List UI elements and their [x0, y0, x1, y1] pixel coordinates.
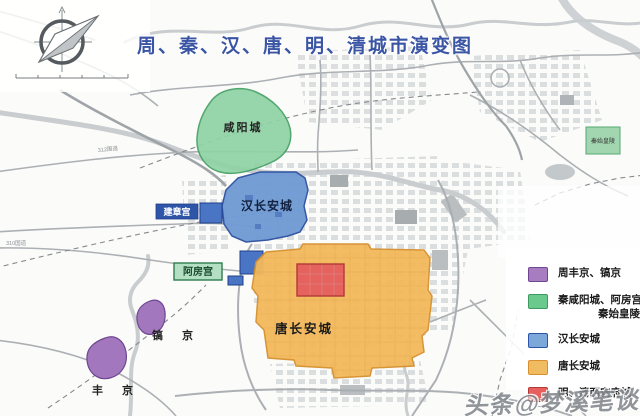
legend-row-zhou: 周丰京、镐京: [528, 266, 640, 282]
legend-label-qin: 秦咸阳城、阿房宫 秦始皇陵: [558, 293, 640, 321]
map-title: 周、秦、汉、唐、明、清城市演变图: [0, 31, 610, 58]
map-fade-right: [498, 186, 640, 258]
city-evolution-map: 咸阳城 秦始皇陵 汉长安城 建章宫 唐长安城: [0, 0, 640, 416]
legend-label-han: 汉长安城: [558, 332, 600, 346]
road-310-label: 310国道: [6, 239, 27, 247]
legend-label-qin-line2: 秦始皇陵: [558, 307, 640, 321]
qin-mausoleum-label: 秦始皇陵: [591, 137, 615, 145]
region-ming-qing-xian: [297, 264, 344, 296]
legend-swatch-han: [528, 333, 548, 348]
legend-row-qin: 秦咸阳城、阿房宫 秦始皇陵: [528, 293, 640, 321]
haojing-label: 镐 京: [152, 328, 201, 342]
watermark: 头条@梦溪笔谈: [463, 380, 640, 416]
epang-label-box: 阿房宫: [174, 263, 222, 280]
epang-palace-label: 阿房宫: [183, 265, 213, 278]
tang-changan-label: 唐长安城: [275, 321, 333, 336]
han-changan-label: 汉长安城: [241, 198, 293, 213]
jianzhang-palace-label: 建章宫: [163, 206, 190, 217]
legend-label-zhou: 周丰京、镐京: [558, 266, 621, 280]
legend-swatch-tang: [528, 360, 548, 375]
legend-row-tang: 唐长安城: [528, 359, 640, 375]
xianyang-city-label: 咸阳城: [224, 120, 263, 134]
legend-row-han: 汉长安城: [528, 332, 640, 348]
legend-label-qin-line1: 秦咸阳城、阿房宫: [558, 294, 640, 306]
legend-label-tang: 唐长安城: [558, 359, 600, 373]
fengjing-label: 丰 京: [92, 383, 141, 397]
legend-swatch-zhou: [528, 267, 548, 282]
legend-swatch-qin: [528, 294, 548, 309]
jianzhang-label-box: 建章宫: [156, 204, 198, 219]
